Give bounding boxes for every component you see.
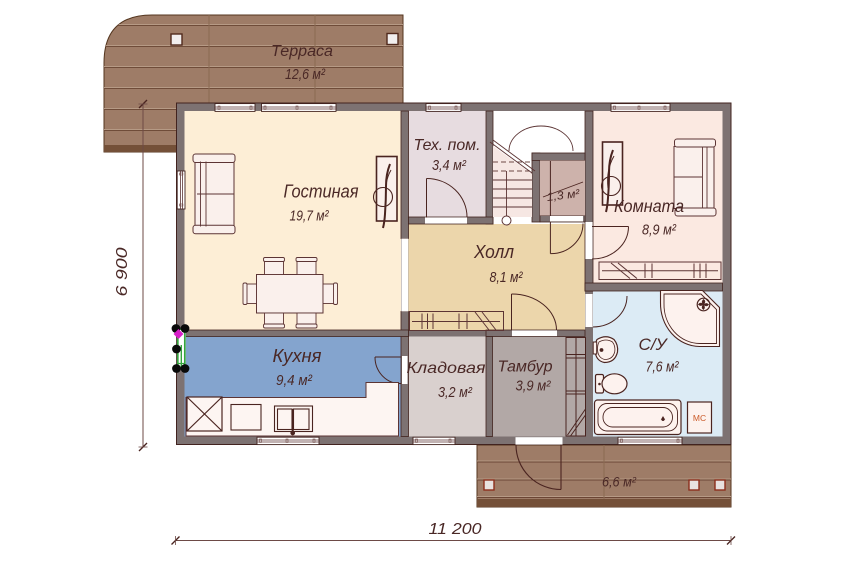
svg-text:Холл: Холл: [473, 242, 514, 262]
svg-text:12,6 м²: 12,6 м²: [285, 66, 326, 83]
svg-text:Кухня: Кухня: [273, 346, 322, 366]
svg-text:19,7 м²: 19,7 м²: [290, 208, 330, 225]
svg-text:Комната: Комната: [614, 196, 684, 216]
svg-text:Тамбур: Тамбур: [498, 359, 553, 376]
svg-text:Тех. пом.: Тех. пом.: [414, 137, 481, 154]
svg-text:6 900: 6 900: [114, 247, 131, 296]
svg-text:11 200: 11 200: [429, 521, 482, 538]
svg-text:Кладовая: Кладовая: [407, 360, 486, 377]
svg-text:С/У: С/У: [639, 336, 669, 354]
svg-text:6,6 м²: 6,6 м²: [602, 474, 637, 490]
svg-text:3,4 м²: 3,4 м²: [432, 158, 467, 174]
svg-text:МС: МС: [693, 413, 706, 423]
svg-text:Гостиная: Гостиная: [284, 182, 359, 202]
svg-text:3,9 м²: 3,9 м²: [516, 379, 552, 395]
svg-text:3,2 м²: 3,2 м²: [438, 385, 473, 401]
svg-text:8,1 м²: 8,1 м²: [490, 269, 524, 286]
svg-text:8,9 м²: 8,9 м²: [642, 222, 677, 239]
svg-text:7,6 м²: 7,6 м²: [646, 359, 680, 376]
svg-text:9,4 м²: 9,4 м²: [276, 372, 313, 389]
svg-text:Терраса: Терраса: [271, 43, 333, 60]
